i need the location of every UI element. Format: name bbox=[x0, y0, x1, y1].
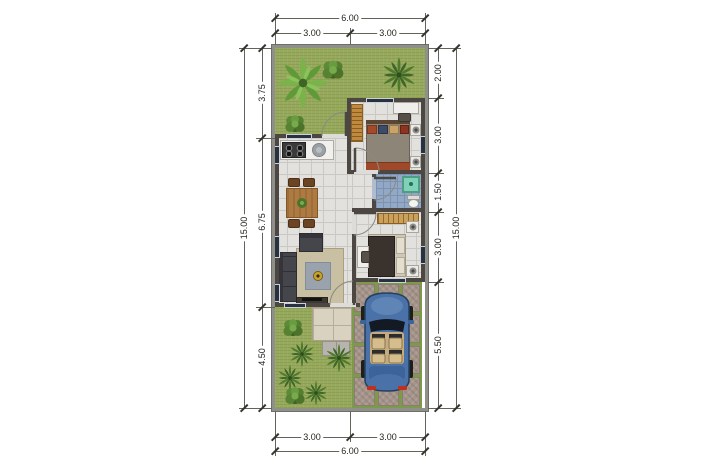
dim-label: 6.00 bbox=[339, 13, 361, 23]
dim-label: 3.75 bbox=[257, 82, 267, 104]
bathroom-door-arc bbox=[374, 178, 396, 200]
dim-label: 15.00 bbox=[451, 215, 461, 242]
dim-label: 2.00 bbox=[433, 62, 443, 84]
dim-label: 1.50 bbox=[433, 181, 443, 203]
dim-label: 3.00 bbox=[301, 432, 323, 442]
bedroom1-door-threshold bbox=[354, 170, 378, 174]
bedroom2-door-threshold bbox=[352, 212, 356, 234]
dim-label: 6.00 bbox=[339, 446, 361, 456]
back-door-arc bbox=[322, 112, 346, 136]
dim-label: 3.00 bbox=[377, 28, 399, 38]
floor-plan: 6.00 3.00 3.00 3.00 3.00 6.00 15.00 3.75… bbox=[0, 0, 708, 471]
dim-label: 3.00 bbox=[377, 432, 399, 442]
door-swings bbox=[0, 0, 708, 471]
front-door-threshold bbox=[330, 303, 356, 307]
bedroom2-door-arc bbox=[354, 213, 376, 235]
dim-label: 15.00 bbox=[239, 215, 249, 242]
dim-label: 3.00 bbox=[433, 236, 443, 258]
dim-label: 3.00 bbox=[301, 28, 323, 38]
front-door-arc bbox=[330, 281, 354, 305]
bathroom-door-threshold bbox=[372, 177, 376, 199]
dim-label: 3.00 bbox=[433, 124, 443, 146]
dim-label: 6.75 bbox=[257, 211, 267, 233]
dim-label: 4.50 bbox=[257, 346, 267, 368]
back-door-threshold bbox=[322, 134, 347, 138]
dim-label: 5.50 bbox=[433, 334, 443, 356]
bedroom1-door-arc bbox=[355, 148, 379, 172]
